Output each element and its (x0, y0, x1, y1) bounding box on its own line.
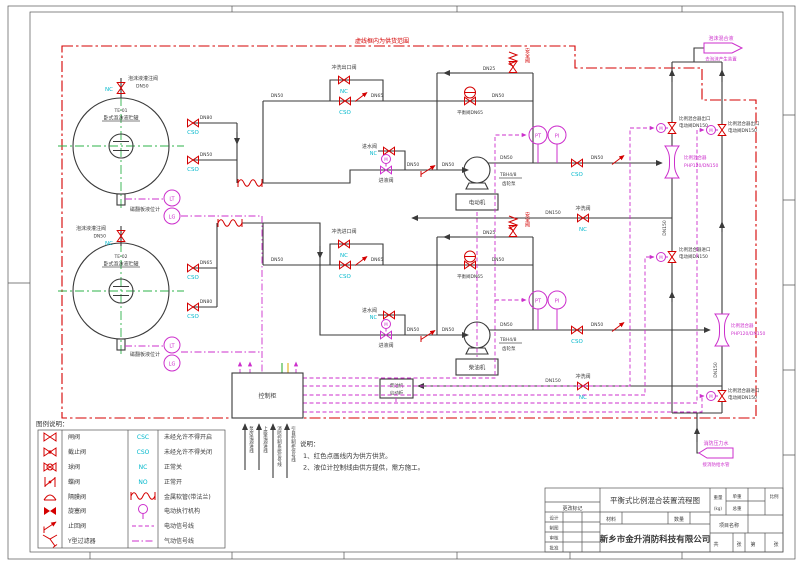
safety-valve-2 (509, 216, 517, 237)
supply-scope-note: 虚线框内为供货范围 (355, 37, 409, 45)
tank2-fill-valve-state: NC (105, 241, 113, 247)
tank2-fill-valve-dn: DN50 (93, 234, 106, 240)
svg-text:旋塞阀: 旋塞阀 (68, 507, 86, 515)
balance-valve-1-label: 平衡阀DN65 (457, 109, 483, 116)
svg-text:CSO: CSO (137, 449, 150, 456)
safety-valve-2-label: 安全阀 (524, 211, 530, 228)
tb-sheet-zhang2: 张 (773, 541, 778, 548)
svg-text:电动信号线: 电动信号线 (164, 522, 194, 530)
mixer-outlet-valve-1-label1: 比例混合器出口 (679, 115, 711, 122)
proportioner-1 (665, 146, 679, 178)
foam-outlet-label-bottom: 去泡沫产生装置 (705, 56, 737, 63)
tank1-lg: LG (169, 215, 176, 221)
drawing-title: 平衡式比例混合装置流程图 (610, 495, 700, 505)
svg-text:NO: NO (138, 479, 147, 486)
cable1-label: 泵房电源进线 (249, 426, 254, 454)
flush-outlet-valve-state: NC (340, 89, 348, 95)
mixer-inlet-valve-1-m: M (659, 255, 663, 260)
flush-line1-state: CSO (339, 110, 351, 116)
svg-text:蝶阀: 蝶阀 (68, 478, 80, 486)
pi1-label: PI (555, 134, 560, 140)
discharge2-state: CSO (571, 339, 583, 345)
discharge1-state: CSO (571, 172, 583, 178)
mixer-inlet-valve-2 (718, 391, 726, 402)
svg-text:NC: NC (139, 464, 148, 471)
safety-valve-1-label: 安全阀 (524, 47, 530, 64)
liquid-inlet-valve-2-label: 进液阀 (378, 342, 393, 349)
balance2-dn: DN50 (492, 257, 505, 263)
tank1-fill-valve-state: NC (105, 87, 113, 93)
tb-scale: 比例 (770, 493, 779, 500)
balance-valve-2 (465, 251, 476, 269)
signal-lines (181, 128, 704, 412)
water-inlet-valve-2-label: 进水阀 (362, 307, 377, 314)
mixer-inlet-valve-1-label2: 电动阀DN150 (679, 253, 708, 260)
notes-line2: 2、液位计控制线由供方提供，需方施工。 (303, 463, 424, 472)
tank1-level-gauge-label: 磁翻板液位计 (130, 206, 160, 213)
fire-water-inlet-flag (699, 448, 733, 458)
tank2-lg: LG (169, 362, 176, 368)
liquid-valve-1-actuator-m: M (384, 157, 388, 162)
sheet-frame (8, 6, 795, 559)
tb-quantity: 数量 (674, 516, 684, 523)
mixer-outlet-valve-1 (668, 123, 676, 134)
legend-box (38, 430, 225, 548)
motor-label: 电动机 (469, 199, 486, 207)
tank2-outlet1-dn: DN65 (200, 260, 213, 266)
flush-line2-state: CSO (339, 274, 351, 280)
tank2-level-gauge-label: 磁翻板液位计 (130, 351, 160, 358)
return2-dn: DN150 (545, 378, 561, 384)
riser1-dn: DN150 (662, 220, 668, 236)
svg-text:未经允许不得开启: 未经允许不得开启 (164, 433, 212, 441)
tb-change-mark: 更改标记 (562, 505, 582, 512)
company-name: 新乡市金升消防科技有限公司 (600, 534, 711, 545)
check-valve-1 (421, 166, 435, 178)
process-pipes (121, 48, 722, 453)
mixer-outlet-valve-2 (718, 125, 726, 136)
tank1-outlet2-dn: DN50 (200, 152, 213, 158)
flush-valve-1-state: NC (579, 227, 587, 233)
tank1-lt: LT (169, 197, 175, 203)
safety1-dn: DN25 (483, 66, 496, 72)
legend-labels: 闸阀 截止阀 球阀 蝶阀 隔膜阀 旋塞阀 止回阀 Y型过滤器 CSC CSO N… (67, 433, 212, 545)
svg-text:正常开: 正常开 (164, 478, 182, 486)
tb-approve: 批准 (550, 545, 559, 552)
tank1-outlet1-state: CSO (187, 130, 199, 136)
tb-sheet-zhang: 张 (736, 541, 741, 548)
suction2-dn-b: DN50 (442, 327, 455, 333)
proportioner-2-model: PHP120/DN150 (731, 331, 765, 337)
incoming-cables: 泵房电源进线 上级电源进线 消防控制系统信号线 引自控制柜信号线 (245, 424, 296, 478)
tank2-outlet1-state: CSO (187, 275, 199, 281)
liquid-valve-2-actuator-m: M (384, 322, 388, 327)
water-inlet-label-bottom: 接消防给水管 (703, 461, 730, 468)
flush-valve-2-state: NC (579, 395, 587, 401)
pi2-label: PI (555, 299, 560, 305)
mixer-outlet-valve-2-m: M (709, 128, 713, 133)
flush-line1-dn: DN65 (371, 93, 384, 99)
mixer-inlet-valve-2-label1: 比例混合器进口 (728, 387, 760, 394)
mixer-outlet-valve-1-m: M (659, 126, 663, 131)
pump2-type: 齿轮泵 (502, 345, 516, 352)
flush-line2-dn-left: DN50 (271, 257, 284, 263)
water-inlet-valve-1-state: NC (370, 151, 378, 157)
cable2-label: 上级电源进线 (263, 425, 268, 454)
water-inlet-label-top: 消防压力水 (703, 440, 728, 447)
cable4-label: 引自控制柜信号线 (291, 425, 296, 463)
mixer-inlet-valve-2-m: M (709, 394, 713, 399)
svg-text:止回阀: 止回阀 (68, 522, 86, 530)
drawing-sheet: 虚线框内为供货范围 TE-01 卧式泡沫液贮罐 TE-02 卧式泡沫液贮罐 泡沫… (0, 0, 800, 565)
flush-inlet-valve-state: NC (340, 253, 348, 259)
tank1-level-gauge: LT LG 磁翻板液位计 (125, 190, 180, 224)
flow-slope-2 (355, 257, 367, 266)
tank2-lt: LT (169, 344, 175, 350)
flush-valve-1-label: 冲洗阀 (575, 205, 590, 212)
tb-unit-weight: 单重 (733, 493, 742, 500)
pid-diagram: 虚线框内为供货范围 TE-01 卧式泡沫液贮罐 TE-02 卧式泡沫液贮罐 泡沫… (0, 0, 800, 565)
diesel-starter-line1: 柴油机 (390, 382, 404, 389)
flush-line1-dn-left: DN50 (271, 93, 284, 99)
riser2-dn: DN150 (713, 362, 719, 378)
foam-outlet-label-top: 泡沫混合液 (708, 35, 733, 42)
safety-valve-1 (509, 52, 517, 73)
svg-text:正常关: 正常关 (164, 463, 182, 471)
tank2-outlet2-state: CSO (187, 314, 199, 320)
cable3-label: 消防控制系统信号线 (277, 425, 282, 467)
suction1-dn-b: DN50 (442, 162, 455, 168)
balance1-dn: DN50 (492, 93, 505, 99)
tank1-fill-valve-dn: DN50 (136, 84, 149, 90)
tb-project-name: 项目名称 (719, 522, 739, 529)
tb-material: 材料 (606, 516, 616, 523)
svg-text:金属软管(带法兰): 金属软管(带法兰) (164, 493, 211, 501)
foam-pump-2 (462, 322, 490, 354)
flush-valve-2-label: 冲洗阀 (575, 373, 590, 380)
mixer-inlet-valve-1 (668, 252, 676, 263)
foam-pump-1 (462, 157, 490, 189)
control-cabinet-label: 控制柜 (258, 392, 276, 400)
pt2-label: PT (535, 299, 542, 305)
water-inlet-valve-1-label: 进水阀 (362, 143, 377, 150)
tank1-tag: TE-01 (114, 108, 128, 114)
tb-total-weight: 总重 (733, 505, 742, 512)
liquid-inlet-valve-1-label: 进液阀 (378, 177, 393, 184)
return1-dn: DN150 (545, 210, 561, 216)
diesel-label: 柴油机 (469, 364, 486, 372)
svg-text:CSC: CSC (137, 434, 149, 441)
tb-weight: 重量 (714, 494, 723, 501)
suction2-dn-a: DN50 (407, 327, 420, 333)
pump1-type: 齿轮泵 (502, 180, 516, 187)
tank2-fill-valve-label: 泡沫液灌注阀 (76, 225, 106, 232)
flush-outlet-valve-label: 冲洗出口阀 (331, 64, 356, 71)
svg-text:气动信号线: 气动信号线 (164, 537, 194, 545)
discharge1-dn-a: DN50 (500, 155, 513, 161)
pump1-model: TBH4/8 (499, 172, 517, 178)
tank1-outlet2-state: CSO (187, 167, 199, 173)
svg-text:球阀: 球阀 (68, 463, 80, 471)
notes-heading: 说明： (300, 439, 320, 448)
mixer-inlet-valve-1-label1: 比例混合器进口 (679, 246, 711, 253)
water-inlet-valve-2-state: NC (370, 315, 378, 321)
svg-text:Y型过滤器: Y型过滤器 (67, 537, 96, 545)
tank2-level-gauge: LT LG 磁翻板液位计 (125, 337, 180, 371)
tb-design: 设计 (550, 515, 559, 522)
tb-weight-unit: (kg) (714, 506, 722, 511)
notes: 说明： 1、红色点画线内为供方供货。 2、液位计控制线由供方提供，需方施工。 (300, 439, 424, 472)
svg-text:闸阀: 闸阀 (68, 433, 80, 441)
metal-hose-1 (238, 179, 262, 187)
mixer-outlet-valve-1-label2: 电动阀DN150 (679, 122, 708, 129)
suction1-dn-a: DN50 (407, 162, 420, 168)
metal-hose-2 (218, 219, 242, 227)
supply-scope-boundary (62, 46, 756, 418)
check-valve-2 (421, 331, 435, 343)
flush-line2-dn: DN65 (371, 257, 384, 263)
notes-line1: 1、红色点画线内为供方供货。 (303, 451, 392, 460)
legend-heading: 图例说明： (36, 419, 69, 428)
tb-draft: 制图 (550, 525, 559, 532)
proportioner-1-model: PHP120/DN150 (684, 163, 718, 169)
tb-check: 审核 (550, 535, 559, 542)
proportioner-2 (715, 314, 729, 346)
svg-text:电动执行机构: 电动执行机构 (164, 507, 200, 515)
proportioner-1-label: 比例混合器 (684, 154, 707, 161)
tb-sheet-no: 第 (750, 541, 755, 548)
tank1-name: 卧式泡沫液贮罐 (103, 115, 138, 122)
svg-text:未经允许不得关闭: 未经允许不得关闭 (164, 448, 212, 456)
title-block: 平衡式比例混合装置流程图 更改标记 设计 制图 审核 批准 材料 数量 新乡市金… (545, 488, 783, 552)
discharge2-dn-a: DN50 (500, 322, 513, 328)
discharge1-dn-b: DN50 (591, 155, 604, 161)
pt1-label: PT (535, 134, 542, 140)
tank1-fill-valve-label: 泡沫液灌注阀 (128, 75, 158, 82)
discharge2-dn-b: DN50 (591, 322, 604, 328)
balance-valve-1 (465, 87, 476, 105)
flush-inlet-valve-label: 冲洗进口阀 (331, 228, 356, 235)
svg-text:截止阀: 截止阀 (68, 448, 86, 456)
safety2-dn: DN25 (483, 230, 496, 236)
proportioner-2-label: 比例混合器 (731, 322, 754, 329)
tank2-outlet2-dn: DN80 (200, 299, 213, 305)
pump2-model: TBH4/8 (499, 337, 517, 343)
flow-slope-1 (355, 93, 367, 102)
foam-solution-outlet-flag (704, 43, 742, 53)
mixer-outlet-valve-2-label2: 电动阀DN150 (728, 127, 757, 134)
tb-sheet-total: 共 (713, 541, 718, 548)
mixer-inlet-valve-2-label2: 电动阀DN150 (728, 394, 757, 401)
tank2-name: 卧式泡沫液贮罐 (103, 261, 138, 268)
svg-text:隔膜阀: 隔膜阀 (68, 493, 86, 501)
balance-valve-2-label: 平衡阀DN65 (457, 273, 483, 280)
mixer-outlet-valve-2-label1: 比例混合器出口 (728, 120, 760, 127)
tank2-tag: TE-02 (114, 254, 128, 260)
tank1-outlet1-dn: DN80 (200, 115, 213, 121)
